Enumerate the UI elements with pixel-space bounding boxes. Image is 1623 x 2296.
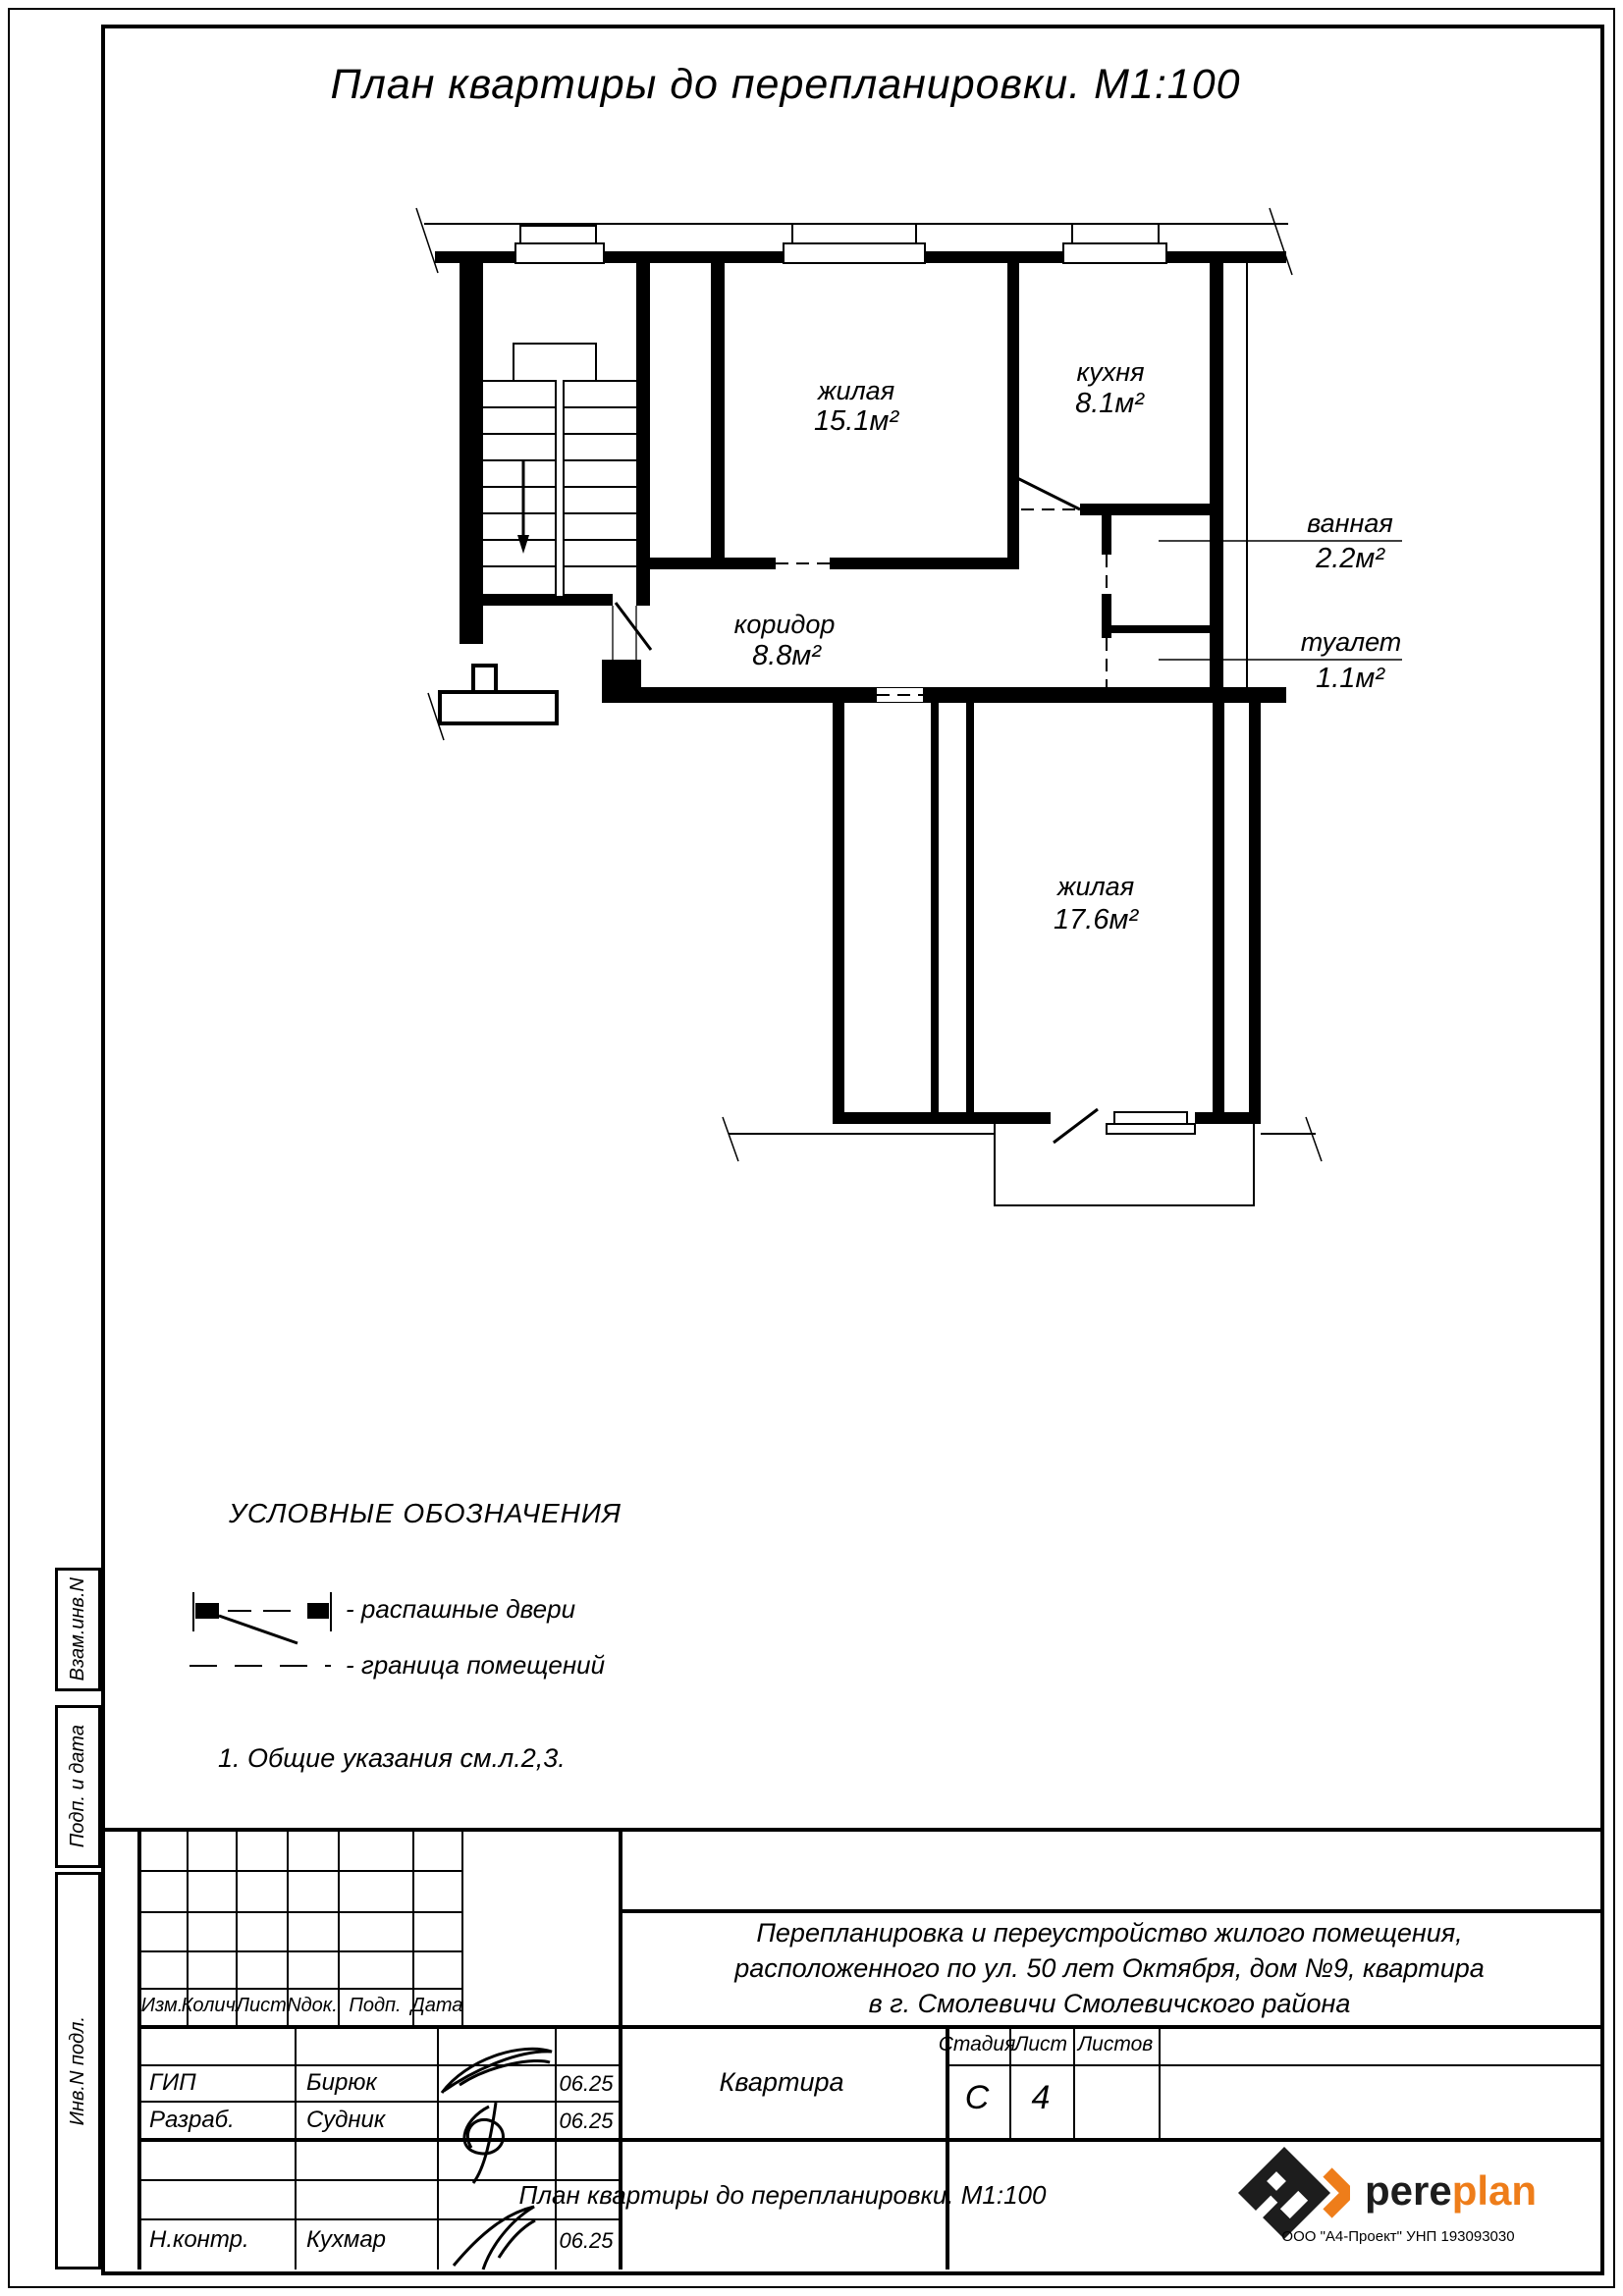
signature-gip <box>442 2049 552 2093</box>
room-label-toilet: туалет <box>1301 627 1402 658</box>
sheets-header: Листов <box>1078 2033 1153 2056</box>
stage-value: С <box>965 2079 990 2117</box>
sheet-value: 4 <box>1032 2079 1051 2117</box>
row-razrab-role: Разраб. <box>149 2107 235 2134</box>
drawing-name: План квартиры до перепланировки. М1:100 <box>519 2180 1047 2211</box>
stairs-direction-arrow <box>517 461 529 554</box>
balcony <box>995 1124 1254 1205</box>
pereplan-logo-text: pereplan <box>1365 2167 1537 2215</box>
titleblock-line <box>137 2064 619 2066</box>
object-name: Квартира <box>720 2067 844 2098</box>
row-nkontr-date: 06.25 <box>559 2228 613 2254</box>
titleblock-line <box>295 2025 297 2269</box>
drawing-sheet: План квартиры до перепланировки. М1:100 <box>0 0 1623 2296</box>
room-label-kitchen: кухня <box>1076 357 1144 388</box>
titleblock-line <box>137 2025 1600 2029</box>
strip-box-vzam: Взам.инв.N <box>55 1568 101 1691</box>
project-line-2: расположенного по ул. 50 лет Октября, до… <box>734 1953 1485 1984</box>
col-header-kol: Колич. <box>182 1995 242 2017</box>
legend-heading: УСЛОВНЫЕ ОБОЗНАЧЕНИЯ <box>229 1498 622 1529</box>
project-line-1: Перепланировка и переустройство жилого п… <box>756 1918 1462 1949</box>
titleblock-line <box>338 1828 340 2025</box>
titleblock-line <box>137 2218 619 2220</box>
strip-box-inv: Инв.N подл. <box>55 1872 101 2269</box>
row-nkontr-role: Н.контр. <box>149 2226 249 2254</box>
col-header-data: Дата <box>411 1995 463 2017</box>
room-area-kitchen: 8.1м² <box>1075 388 1144 420</box>
row-gip-name: Бирюк <box>306 2069 377 2097</box>
titleblock-line <box>137 1828 141 2269</box>
row-gip-date: 06.25 <box>559 2071 613 2097</box>
strip-label-vzam: Взам.инв.N <box>67 1577 89 1681</box>
titleblock-line <box>946 2064 1600 2066</box>
sheet-header: Лист <box>1014 2033 1067 2056</box>
titleblock-line <box>619 1909 1600 1913</box>
col-header-ndok: Nдок. <box>287 1995 338 2017</box>
legend-item-doors: - распашные двери <box>346 1594 575 1625</box>
kitchen-door-swing <box>1017 478 1080 509</box>
room-area-living1: 15.1м² <box>814 405 898 438</box>
general-note: 1. Общие указания см.л.2,3. <box>218 1743 566 1774</box>
strip-label-inv: Инв.N подл. <box>67 2016 89 2125</box>
row-gip-role: ГИП <box>149 2069 196 2097</box>
titleblock-line <box>946 2025 949 2269</box>
titleblock-line <box>437 2025 439 2269</box>
legend-item-boundary: - граница помещений <box>346 1650 605 1681</box>
room-area-corridor: 8.8м² <box>752 640 821 672</box>
org-requisites: ООО "А4-Проект" УНП 193093030 <box>1281 2228 1514 2245</box>
room-label-living1: жилая <box>818 376 894 406</box>
room-area-bathroom: 2.2м² <box>1316 543 1384 575</box>
logo-text-pere: pere <box>1365 2167 1452 2214</box>
titleblock-line <box>1073 2025 1075 2138</box>
row-razrab-name: Судник <box>306 2107 385 2134</box>
titleblock-line <box>555 2025 557 2269</box>
titleblock-line <box>101 1828 1600 1832</box>
titleblock-line <box>137 2138 1600 2142</box>
room-area-living2: 17.6м² <box>1054 904 1138 936</box>
room-label-bathroom: ванная <box>1307 508 1393 539</box>
entrance-door-swing <box>616 603 651 650</box>
col-header-izm: Изм. <box>141 1995 184 2017</box>
room-label-living2: жилая <box>1057 872 1134 902</box>
legend-door-symbol <box>193 1592 331 1643</box>
strip-box-podp: Подп. и дата <box>55 1705 101 1868</box>
strip-label-podp: Подп. и дата <box>67 1725 89 1847</box>
titleblock-line <box>137 2101 619 2103</box>
stage-header: Стадия <box>939 2033 1016 2056</box>
door-swings <box>616 478 1098 1143</box>
col-header-podp: Подп. <box>349 1995 401 2017</box>
row-nkontr-name: Кухмар <box>306 2226 386 2254</box>
entrance-porch <box>440 666 557 723</box>
balcony-door-swing <box>1054 1109 1098 1143</box>
signatures <box>442 2049 552 2269</box>
project-line-3: в г. Смолевичи Смолевичского района <box>869 1989 1351 2019</box>
logo-text-plan: plan <box>1452 2167 1537 2214</box>
signature-razrab <box>464 2103 504 2183</box>
titleblock-line <box>1159 2025 1161 2138</box>
row-razrab-date: 06.25 <box>559 2109 613 2134</box>
room-label-corridor: коридор <box>734 610 836 640</box>
signature-nkontr <box>454 2207 535 2269</box>
col-header-list: Лист <box>236 1995 287 2017</box>
room-boundaries-dashed <box>776 509 1107 695</box>
stairs <box>483 344 636 596</box>
exterior-outline <box>416 208 1322 1161</box>
room-area-toilet: 1.1м² <box>1316 663 1384 695</box>
